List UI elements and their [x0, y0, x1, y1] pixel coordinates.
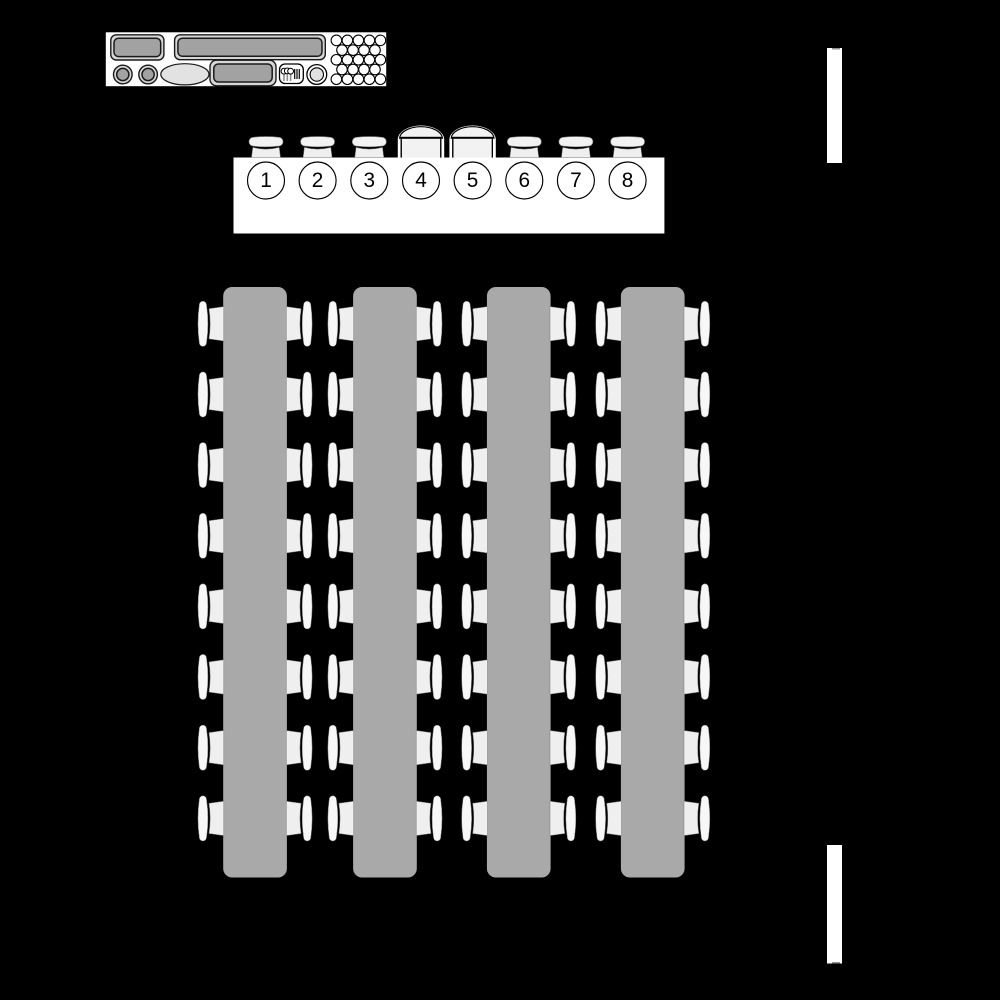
- svg-text:5: 5: [467, 169, 479, 192]
- svg-text:1: 1: [260, 169, 272, 192]
- svg-text:6: 6: [519, 169, 531, 192]
- svg-text:8: 8: [622, 169, 634, 192]
- svg-text:4: 4: [415, 169, 427, 192]
- svg-text:3: 3: [364, 169, 376, 192]
- svg-text:7: 7: [570, 169, 582, 192]
- svg-text:2: 2: [312, 169, 324, 192]
